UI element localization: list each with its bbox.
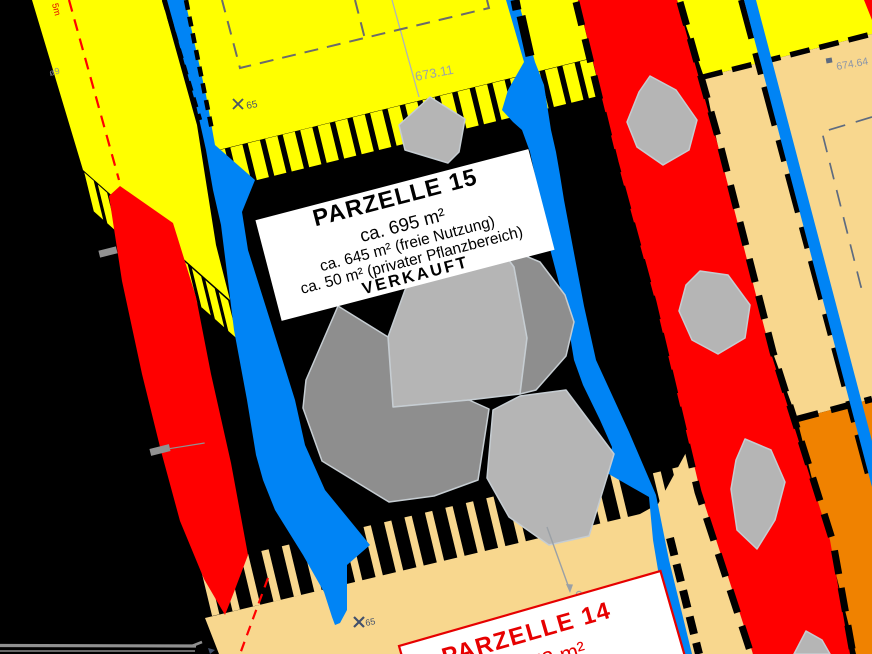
svg-text:65: 65 — [364, 616, 376, 628]
